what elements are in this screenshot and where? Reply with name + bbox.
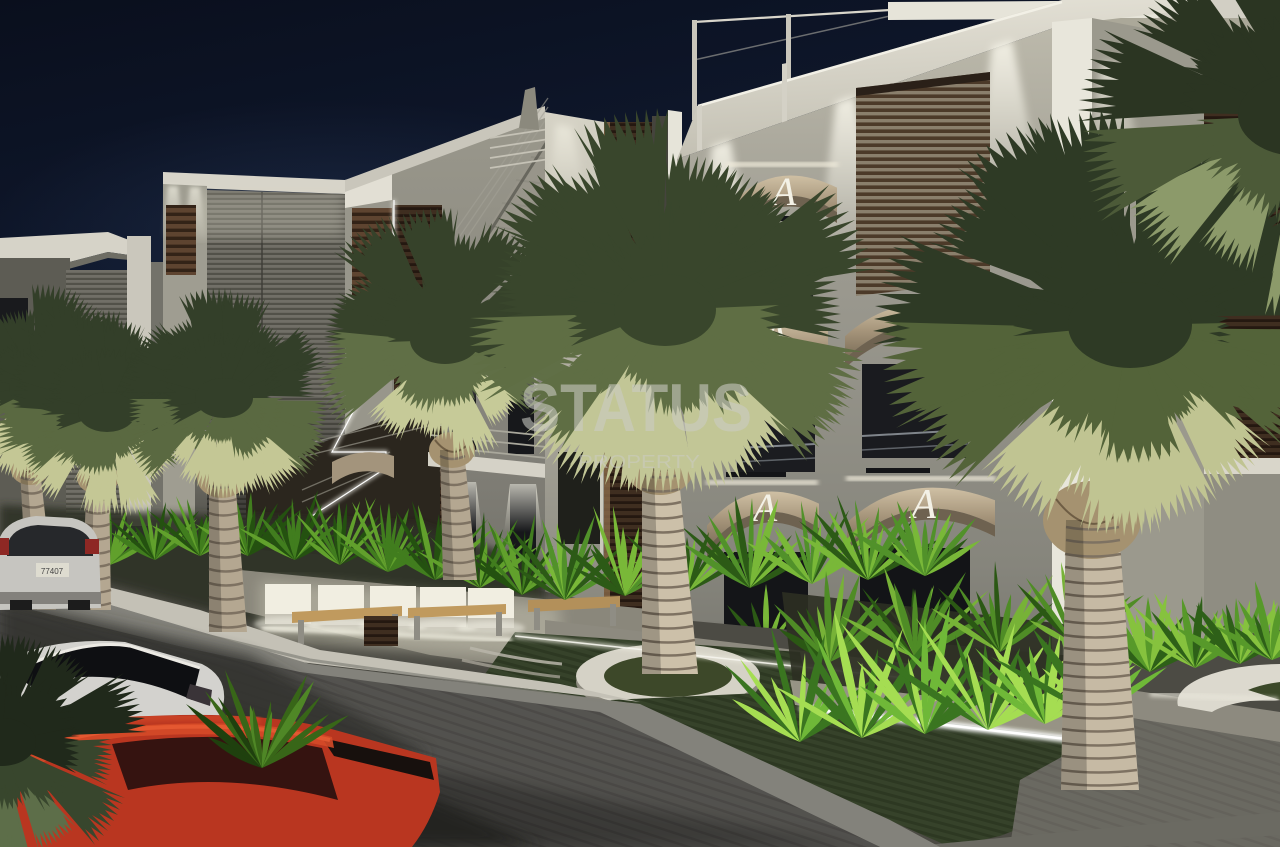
svg-text:77407: 77407 [41,567,64,576]
svg-text:PROPERTY: PROPERTY [578,452,700,472]
svg-text:A: A [750,485,778,530]
svg-text:STATUS: STATUS [520,370,752,446]
svg-text:A: A [769,169,797,214]
